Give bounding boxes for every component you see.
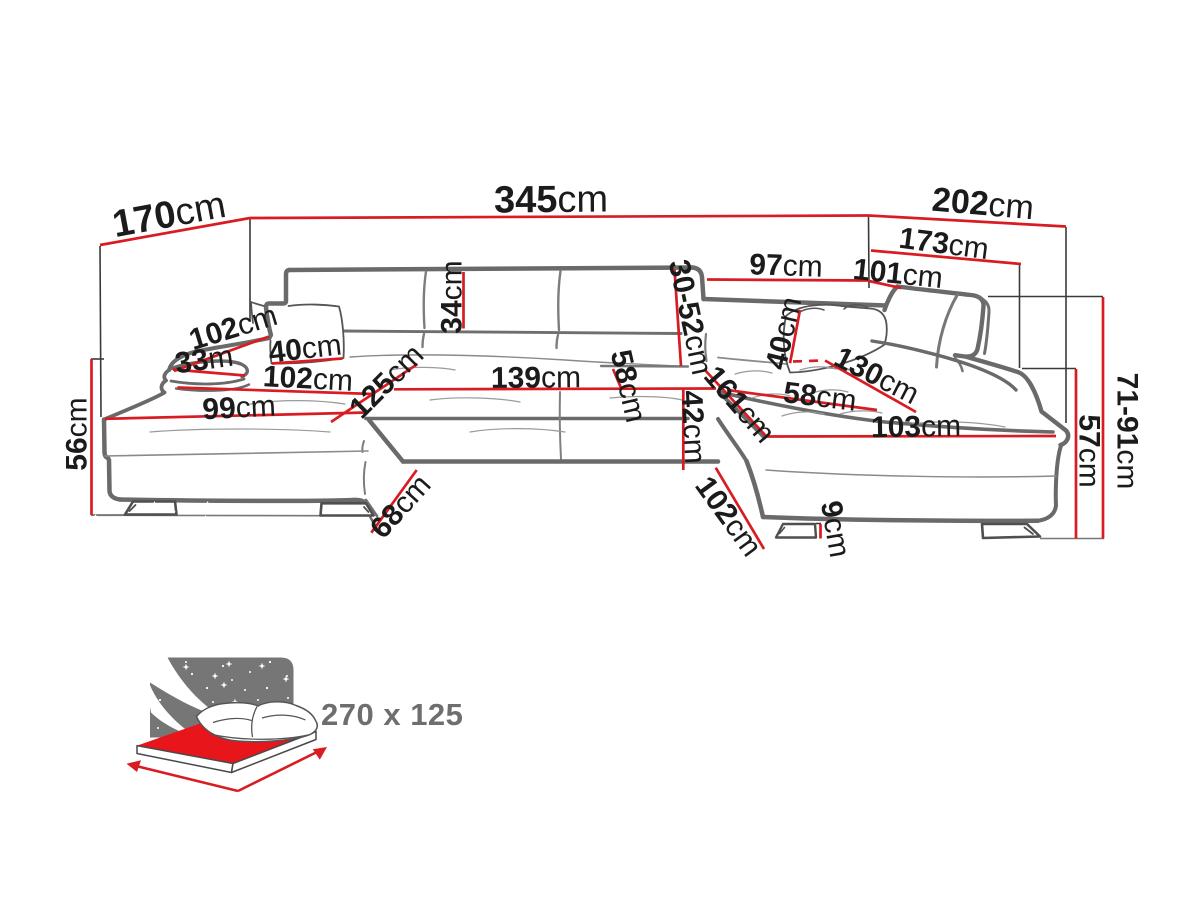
svg-text:97cm: 97cm <box>749 248 823 284</box>
svg-text:103cm: 103cm <box>871 410 962 445</box>
svg-text:139cm: 139cm <box>491 361 581 395</box>
svg-text:71-91cm: 71-91cm <box>1111 373 1144 490</box>
svg-text:42cm: 42cm <box>675 390 712 465</box>
svg-text:99cm: 99cm <box>202 390 277 427</box>
svg-text:57cm: 57cm <box>1073 414 1106 487</box>
svg-text:345cm: 345cm <box>494 179 608 222</box>
svg-text:56cm: 56cm <box>61 397 94 470</box>
svg-text:102cm: 102cm <box>262 360 354 398</box>
svg-text:34cm: 34cm <box>436 260 469 333</box>
svg-text:270 x 125: 270 x 125 <box>321 697 463 732</box>
